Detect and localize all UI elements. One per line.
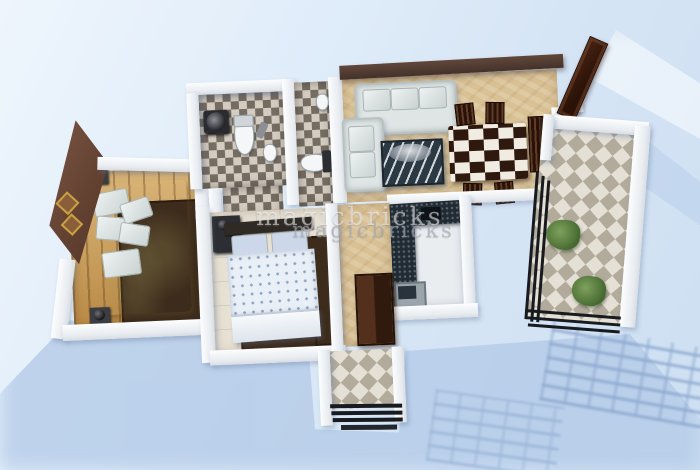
sofa-cushion [348,125,375,152]
wardrobe [354,273,395,347]
rear-railing-bar [331,411,402,416]
floor-plan-render: magicbricks magicbricks [0,0,700,470]
toilet-tank [233,115,254,128]
kitchen-south-wall [392,303,479,321]
sofa-cushion [390,87,419,110]
throw-cushion [101,248,142,279]
terrace [527,114,661,335]
rear-railing-bar [333,418,403,423]
pillow [118,222,151,247]
rear-railing-bar [330,404,402,409]
sofa-cushion [418,86,447,109]
master-north-wall [97,157,199,173]
rear-railing-base [341,425,397,430]
dining-table [448,123,528,182]
kitchen-sink-basin [398,286,417,300]
bed2-duvet [227,249,320,318]
watermark-text-front: magicbricks [292,218,455,242]
rear-balcony-floor [330,349,394,410]
dining-chair [454,102,475,126]
sofa-cushion [349,151,376,178]
sofa-cushion [362,89,391,112]
dining-chair [485,102,504,124]
